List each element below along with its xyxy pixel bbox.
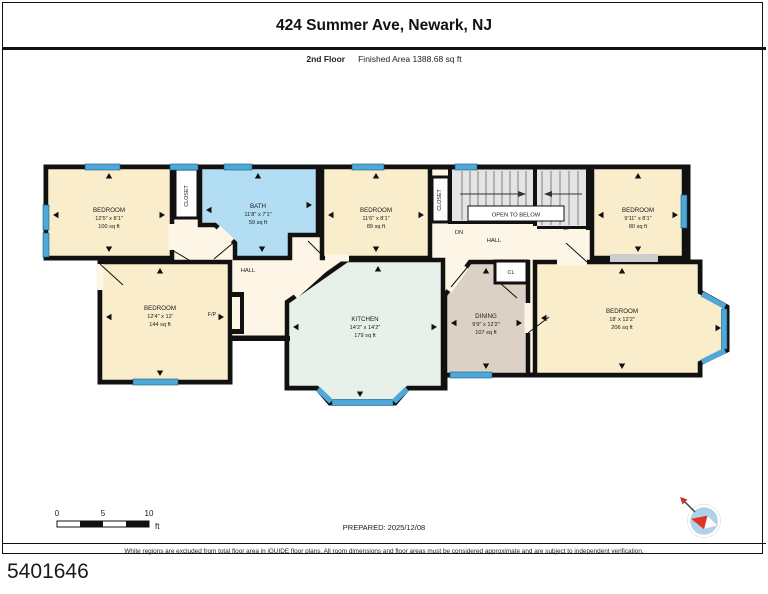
compass-icon: [680, 497, 721, 538]
hall-label: HALL: [487, 238, 502, 244]
window: [170, 164, 198, 170]
room-name: BEDROOM: [606, 308, 638, 315]
fireplace-label: F/P: [208, 312, 217, 318]
room-dims: 9'9" x 12'2": [472, 322, 500, 328]
room-area: 100 sq ft: [98, 224, 120, 230]
window: [352, 164, 384, 170]
room-name: DINING: [475, 313, 497, 320]
room-dims: 18' x 12'2": [609, 317, 635, 323]
floor-plan-drawing: OPEN TO BELOW BEDROOM 12'5" x 8'1" 100 s…: [0, 0, 768, 594]
door-opening: [97, 264, 104, 290]
scale-unit-label: ft: [155, 522, 160, 531]
prepared-date: PREPARED: 2025/12/08: [343, 523, 425, 532]
floor-plan-page: 424 Summer Ave, Newark, NJ 2nd Floor Fin…: [0, 0, 768, 594]
window: [722, 309, 728, 349]
window: [85, 164, 120, 170]
door-opening: [325, 255, 349, 262]
window: [332, 400, 393, 406]
window: [43, 205, 49, 230]
room-dims: 12'4" x 12': [147, 314, 173, 320]
scale-bar-segment: [126, 521, 149, 527]
compass-needle-line: [684, 501, 695, 512]
room-area: 59 sq ft: [249, 220, 268, 226]
room-name: BATH: [250, 203, 266, 210]
stairs-up-label: UP: [563, 226, 571, 232]
door-opening: [610, 254, 658, 262]
door-opening: [557, 259, 587, 266]
room-name: BEDROOM: [622, 207, 654, 214]
scale-bar-segment: [80, 521, 103, 527]
room-area: 206 sq ft: [611, 325, 633, 331]
hall-label: HALL: [241, 268, 256, 274]
window: [455, 164, 477, 170]
scale-bar: 0 5 10 ft: [55, 509, 160, 531]
scale-tick-5: 5: [101, 509, 106, 518]
room-dims: 12'5" x 8'1": [95, 216, 123, 222]
closet-small-label: CL: [508, 270, 515, 276]
disclaimer-text: White regions are excluded from total fl…: [2, 543, 766, 555]
room-name: KITCHEN: [351, 316, 378, 323]
closet-middle-label: CLOSET: [437, 189, 443, 211]
door-opening: [525, 303, 532, 333]
window: [43, 233, 49, 257]
fireplace-inner: [232, 297, 240, 329]
room-name: BEDROOM: [93, 207, 125, 214]
room-area: 144 sq ft: [149, 322, 171, 328]
room-dims: 11'6" x 8'1": [362, 216, 389, 222]
scale-tick-0: 0: [55, 509, 60, 518]
room-dims: 11'8" x 7'1": [244, 212, 271, 218]
open-to-below-label: OPEN TO BELOW: [492, 213, 541, 219]
plan-id-number: 5401646: [7, 560, 89, 584]
room-area: 179 sq ft: [354, 333, 376, 339]
room-name: BEDROOM: [360, 207, 392, 214]
window: [133, 379, 178, 385]
door-opening: [169, 224, 176, 250]
window: [681, 195, 687, 228]
room-name: BEDROOM: [144, 305, 176, 312]
room-area: 80 sq ft: [629, 224, 648, 230]
closet-left-label: CLOSET: [184, 185, 190, 207]
room-dims: 14'2" x 14'2": [350, 325, 381, 331]
scale-tick-10: 10: [145, 509, 154, 518]
room-area: 89 sq ft: [367, 224, 386, 230]
window: [224, 164, 252, 170]
stairs-down-label: DN: [455, 230, 463, 236]
hall-bottom-wall: [228, 336, 290, 341]
window: [450, 372, 492, 378]
room-area: 107 sq ft: [475, 330, 497, 336]
room-dims: 9'11" x 8'1": [624, 216, 651, 222]
